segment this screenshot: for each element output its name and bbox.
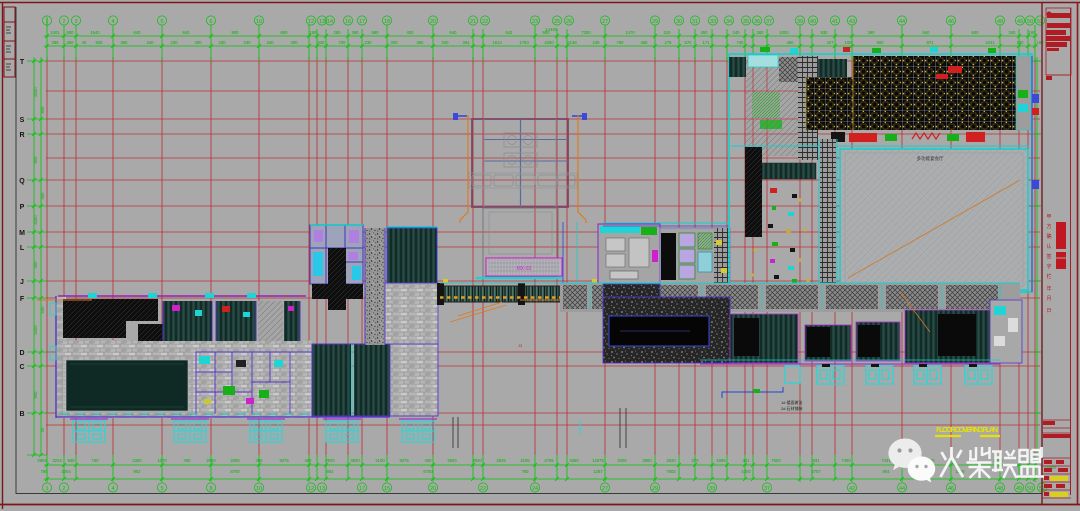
svg-text:S: S	[20, 117, 25, 124]
svg-text:14400: 14400	[545, 27, 558, 32]
svg-text:50: 50	[1027, 19, 1033, 25]
svg-text:48: 48	[997, 486, 1003, 492]
svg-text:7902: 7902	[666, 469, 676, 474]
svg-text:2920: 2920	[666, 458, 676, 463]
svg-text:5: 5	[160, 19, 163, 25]
svg-text:8700: 8700	[230, 469, 240, 474]
svg-text:多功能宴会厅: 多功能宴会厅	[917, 155, 944, 162]
svg-text:29: 29	[652, 486, 658, 492]
svg-text:160: 160	[310, 30, 318, 35]
svg-text:栏: 栏	[1046, 273, 1051, 280]
svg-text:790: 790	[41, 469, 49, 474]
svg-text:431: 431	[743, 458, 751, 463]
svg-text:902: 902	[327, 469, 335, 474]
svg-text:C: C	[19, 364, 24, 371]
svg-text:29: 29	[652, 19, 658, 25]
svg-text:49: 49	[1016, 486, 1022, 492]
svg-text:427: 427	[827, 40, 835, 45]
svg-text:2000: 2000	[617, 458, 627, 463]
svg-text:330: 330	[318, 40, 326, 45]
svg-text:160: 160	[1029, 30, 1037, 35]
svg-text:37: 37	[764, 486, 770, 492]
svg-text:1750: 1750	[519, 40, 529, 45]
svg-text:30: 30	[676, 19, 682, 25]
svg-text:2004: 2004	[61, 469, 71, 474]
svg-text:300: 300	[391, 40, 399, 45]
svg-text:4707: 4707	[811, 469, 821, 474]
svg-text:40: 40	[810, 19, 816, 25]
svg-text:1: 1	[45, 19, 48, 25]
svg-text:840: 840	[183, 30, 191, 35]
svg-text:390: 390	[52, 40, 60, 45]
svg-text:16: 16	[345, 19, 351, 25]
svg-text:600: 600	[281, 30, 289, 35]
svg-text:700: 700	[339, 40, 347, 45]
svg-text:871: 871	[927, 40, 935, 45]
svg-text:360: 360	[757, 30, 765, 35]
svg-text:3138: 3138	[567, 40, 577, 45]
svg-text:840: 840	[923, 30, 931, 35]
svg-text:940: 940	[68, 458, 76, 463]
svg-text:2904: 2904	[37, 458, 47, 463]
svg-text:20: 20	[430, 486, 436, 492]
svg-text:400: 400	[305, 458, 313, 463]
svg-text:2100: 2100	[375, 458, 385, 463]
svg-text:540: 540	[40, 306, 45, 314]
svg-text:2# 石材铺装: 2# 石材铺装	[781, 405, 803, 411]
svg-text:340: 340	[733, 30, 741, 35]
svg-text:340: 340	[147, 40, 155, 45]
svg-text:450: 450	[787, 40, 795, 45]
svg-text:FLOOR COVERING PLAN: FLOOR COVERING PLAN	[936, 425, 998, 434]
svg-text:22: 22	[480, 486, 486, 492]
svg-text:560: 560	[372, 30, 380, 35]
svg-text:Q: Q	[19, 178, 25, 185]
svg-text:确: 确	[1046, 233, 1051, 240]
svg-text:2: 2	[62, 486, 65, 492]
svg-text:2050: 2050	[206, 458, 216, 463]
svg-text:43: 43	[849, 19, 855, 25]
svg-text:364: 364	[463, 40, 471, 45]
svg-text:460: 460	[641, 40, 649, 45]
svg-text:44: 44	[899, 19, 905, 25]
svg-text:2920: 2920	[447, 458, 457, 463]
svg-text:760: 760	[522, 469, 530, 474]
svg-text:450: 450	[33, 261, 38, 269]
svg-text:3224: 3224	[52, 458, 62, 463]
svg-text:27: 27	[602, 19, 608, 25]
svg-text:44: 44	[899, 486, 905, 492]
svg-text:18: 18	[384, 19, 390, 25]
svg-text:年: 年	[1046, 285, 1051, 292]
svg-text:4795: 4795	[544, 458, 554, 463]
svg-text:160: 160	[1017, 40, 1025, 45]
svg-text:7500: 7500	[771, 458, 781, 463]
svg-text:3920: 3920	[472, 458, 482, 463]
svg-text:275: 275	[665, 40, 673, 45]
svg-text:T: T	[20, 59, 25, 66]
svg-text:12: 12	[308, 486, 314, 492]
svg-text:1913: 1913	[492, 40, 502, 45]
svg-text:300: 300	[291, 40, 299, 45]
svg-text:600: 600	[67, 30, 75, 35]
svg-text:360: 360	[352, 30, 360, 35]
svg-text:42: 42	[849, 486, 855, 492]
svg-text:740: 740	[737, 40, 745, 45]
svg-text:字: 字	[1046, 263, 1051, 270]
svg-text:39: 39	[797, 19, 803, 25]
svg-text:360: 360	[67, 40, 75, 45]
svg-text:17: 17	[359, 19, 365, 25]
svg-text:400: 400	[184, 458, 192, 463]
svg-text:310: 310	[664, 30, 672, 35]
svg-text:M: M	[19, 230, 25, 237]
svg-text:380: 380	[417, 40, 425, 45]
svg-text:4: 4	[111, 19, 114, 25]
svg-text:24: 24	[532, 486, 538, 492]
svg-text:340: 340	[267, 40, 275, 45]
svg-text:4: 4	[111, 486, 114, 492]
svg-text:33: 33	[709, 486, 715, 492]
svg-text:41: 41	[832, 19, 838, 25]
svg-text:20: 20	[430, 19, 436, 25]
svg-text:902: 902	[134, 469, 142, 474]
svg-text:1070: 1070	[157, 458, 167, 463]
svg-text:甲: 甲	[1046, 214, 1051, 220]
svg-text:35: 35	[743, 19, 749, 25]
svg-text:760: 760	[617, 40, 625, 45]
svg-text:4500: 4500	[33, 215, 38, 225]
svg-text:认: 认	[1046, 243, 1051, 250]
svg-text:26: 26	[566, 19, 572, 25]
svg-text:L: L	[20, 245, 25, 252]
svg-text:400: 400	[256, 458, 264, 463]
svg-text:300: 300	[195, 40, 203, 45]
svg-text:2: 2	[62, 19, 65, 25]
svg-text:12675: 12675	[592, 458, 604, 463]
svg-text:23: 23	[532, 19, 538, 25]
svg-text:R: R	[19, 132, 24, 139]
svg-text:840: 840	[972, 30, 980, 35]
svg-text:月: 月	[1046, 296, 1051, 302]
svg-text:MX-02: MX-02	[517, 266, 532, 272]
svg-text:36: 36	[754, 19, 760, 25]
svg-text:5400: 5400	[33, 325, 38, 335]
svg-text:370: 370	[692, 458, 700, 463]
svg-text:37: 37	[766, 19, 772, 25]
svg-text:8400: 8400	[33, 87, 38, 97]
svg-text:签: 签	[1046, 253, 1051, 260]
svg-text:27: 27	[602, 486, 608, 492]
svg-text:840: 840	[40, 106, 45, 114]
svg-text:4350: 4350	[569, 458, 579, 463]
svg-text:3075: 3075	[399, 458, 409, 463]
svg-text:10: 10	[256, 19, 262, 25]
svg-text:J: J	[20, 279, 24, 286]
svg-text:400: 400	[407, 30, 415, 35]
svg-text:5: 5	[160, 486, 163, 492]
svg-text:930: 930	[821, 30, 829, 35]
svg-text:900: 900	[33, 156, 38, 164]
svg-text:2341: 2341	[985, 40, 995, 45]
svg-text:240: 240	[593, 40, 601, 45]
svg-text:230: 230	[244, 40, 252, 45]
svg-text:390: 390	[868, 30, 876, 35]
svg-text:2065: 2065	[230, 458, 240, 463]
svg-text:46: 46	[948, 19, 954, 25]
svg-text:340: 340	[1009, 30, 1017, 35]
svg-text:2380: 2380	[132, 458, 142, 463]
svg-text:49: 49	[1017, 19, 1023, 25]
svg-text:100: 100	[845, 40, 853, 45]
svg-text:10: 10	[256, 486, 262, 492]
svg-text:2195: 2195	[520, 458, 530, 463]
svg-text:7300: 7300	[581, 30, 591, 35]
svg-text:40: 40	[82, 40, 87, 45]
svg-text:34: 34	[726, 19, 732, 25]
svg-text:642: 642	[506, 30, 514, 35]
svg-text:1: 1	[45, 486, 48, 492]
svg-text:方: 方	[1046, 223, 1051, 230]
svg-text:450: 450	[40, 192, 45, 200]
svg-text:日: 日	[1046, 308, 1051, 314]
svg-text:4300: 4300	[741, 469, 751, 474]
svg-text:1540: 1540	[90, 30, 100, 35]
svg-text:P: P	[20, 204, 25, 211]
svg-text:900: 900	[33, 391, 38, 399]
svg-text:940: 940	[96, 40, 104, 45]
svg-text:8: 8	[209, 486, 212, 492]
svg-text:D: D	[19, 350, 24, 357]
svg-text:570: 570	[685, 40, 693, 45]
svg-text:1000: 1000	[779, 30, 789, 35]
svg-text:2920: 2920	[325, 458, 335, 463]
svg-text:48: 48	[997, 19, 1003, 25]
svg-text:13: 13	[319, 486, 325, 492]
svg-text:900: 900	[877, 40, 885, 45]
svg-text:230: 230	[171, 40, 179, 45]
svg-text:1470: 1470	[625, 30, 635, 35]
svg-text:330: 330	[219, 40, 227, 45]
svg-text:760: 760	[92, 458, 100, 463]
svg-text:7460: 7460	[841, 458, 851, 463]
svg-text:1297: 1297	[593, 469, 603, 474]
svg-text:31: 31	[692, 19, 698, 25]
svg-text:640: 640	[134, 30, 142, 35]
svg-text:400: 400	[425, 458, 433, 463]
svg-text:450: 450	[701, 30, 709, 35]
svg-text:B: B	[19, 411, 24, 418]
svg-text:360: 360	[121, 40, 129, 45]
svg-text:25: 25	[554, 19, 560, 25]
svg-text:14: 14	[327, 19, 333, 25]
svg-text:3: 3	[74, 19, 77, 25]
svg-text:12: 12	[308, 19, 314, 25]
svg-text:171: 171	[703, 40, 711, 45]
svg-text:280: 280	[334, 30, 342, 35]
svg-text:904: 904	[883, 469, 891, 474]
svg-text:22: 22	[482, 19, 488, 25]
svg-text:21: 21	[470, 19, 476, 25]
svg-text:6700: 6700	[423, 469, 433, 474]
svg-text:3920: 3920	[350, 458, 360, 463]
svg-text:2250: 2250	[544, 40, 554, 45]
svg-text:2925: 2925	[496, 458, 506, 463]
svg-text:3075: 3075	[279, 458, 289, 463]
svg-text:1# 楼面做法: 1# 楼面做法	[781, 399, 803, 405]
svg-text:15: 15	[384, 486, 390, 492]
svg-text:931: 931	[813, 458, 821, 463]
svg-text:2401: 2401	[50, 30, 60, 35]
svg-text:46: 46	[948, 486, 954, 492]
svg-text:900: 900	[232, 30, 240, 35]
svg-text:193: 193	[1037, 40, 1045, 45]
svg-text:F: F	[20, 296, 25, 303]
svg-text:33: 33	[710, 19, 716, 25]
svg-text:640: 640	[450, 30, 458, 35]
svg-text:3960: 3960	[642, 458, 652, 463]
svg-text:40: 40	[40, 427, 45, 432]
svg-text:50: 50	[1027, 486, 1033, 492]
svg-text:4395: 4395	[716, 458, 726, 463]
svg-text:13: 13	[319, 19, 325, 25]
svg-text:17: 17	[359, 486, 365, 492]
svg-text:6: 6	[209, 19, 212, 25]
svg-text:340: 340	[442, 40, 450, 45]
svg-text:230: 230	[365, 40, 373, 45]
